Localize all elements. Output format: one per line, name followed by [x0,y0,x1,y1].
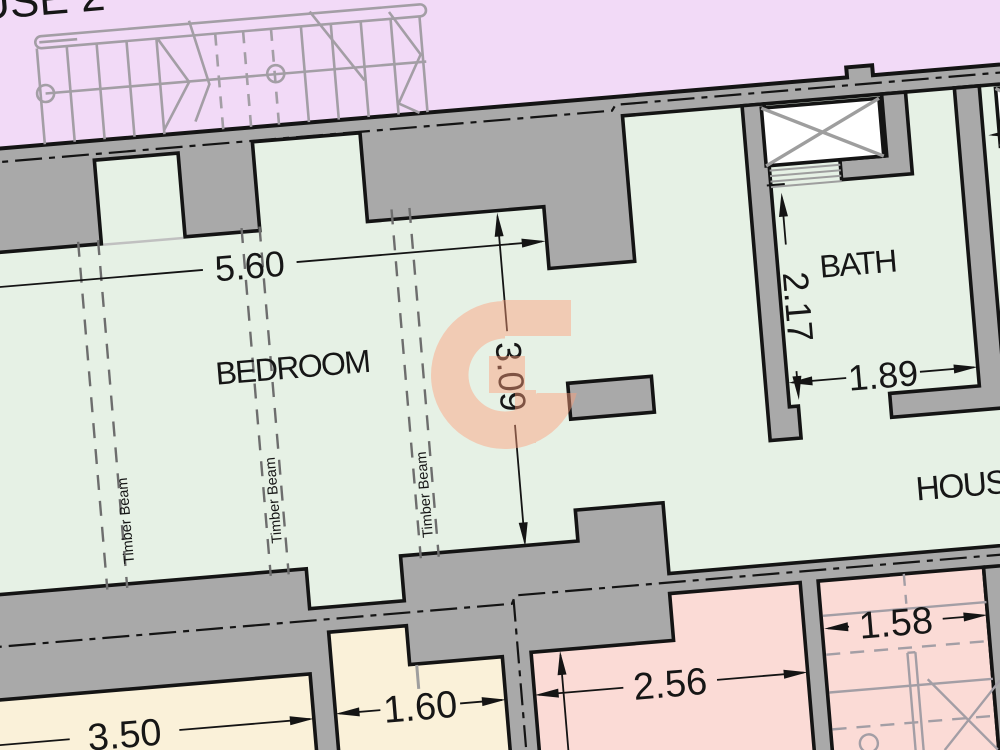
svg-text:1.60: 1.60 [382,684,459,732]
svg-text:2.17: 2.17 [775,270,822,343]
svg-text:1.89: 1.89 [846,352,919,399]
svg-text:3.50: 3.50 [86,712,163,750]
svg-text:2.56: 2.56 [632,661,709,709]
svg-text:BATH: BATH [818,242,897,284]
svg-text:5.60: 5.60 [213,243,286,290]
svg-text:1.58: 1.58 [857,600,934,648]
